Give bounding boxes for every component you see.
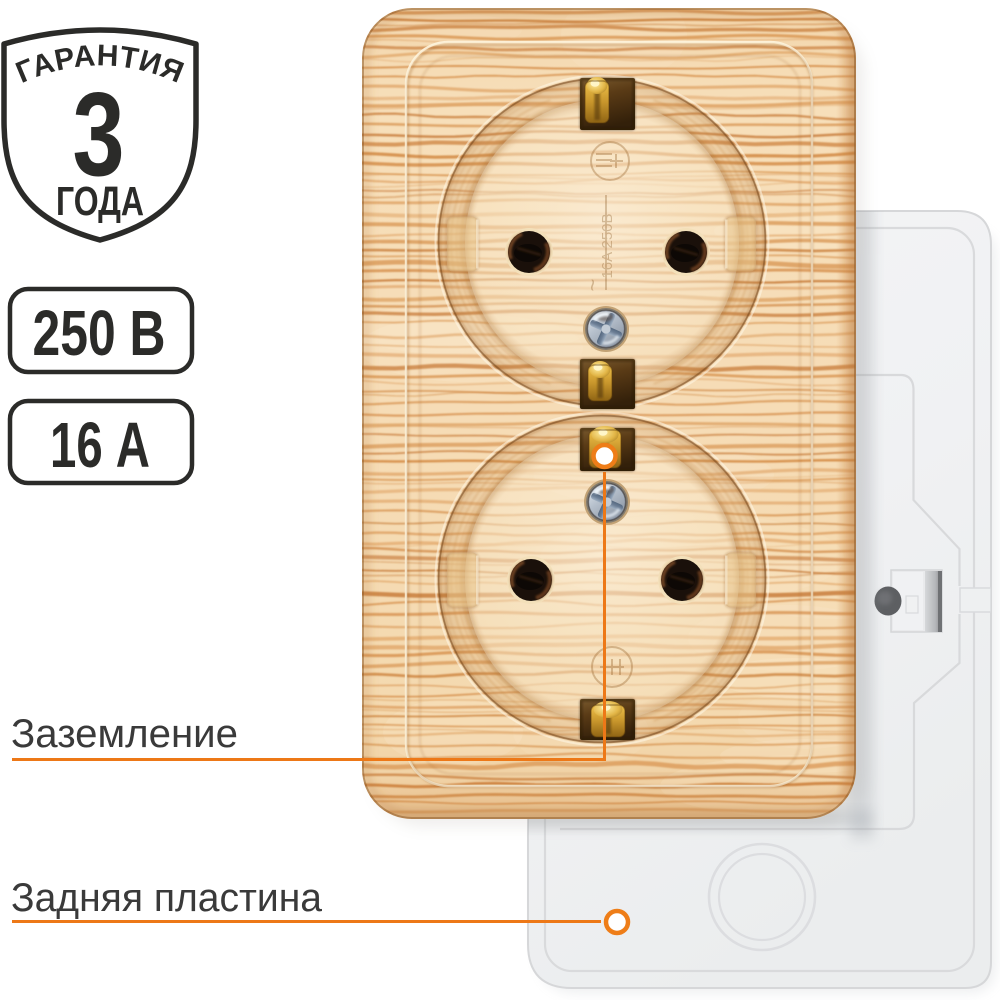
svg-text:Задняя пластина: Задняя пластина: [11, 876, 323, 920]
svg-text:16 А: 16 А: [50, 409, 150, 481]
svg-text:~: ~: [580, 279, 605, 292]
svg-text:250 В: 250 В: [33, 297, 166, 369]
svg-text:ГОДА: ГОДА: [56, 178, 144, 224]
svg-text:Заземление: Заземление: [11, 712, 238, 756]
svg-text:16A 250B: 16A 250B: [599, 213, 616, 278]
